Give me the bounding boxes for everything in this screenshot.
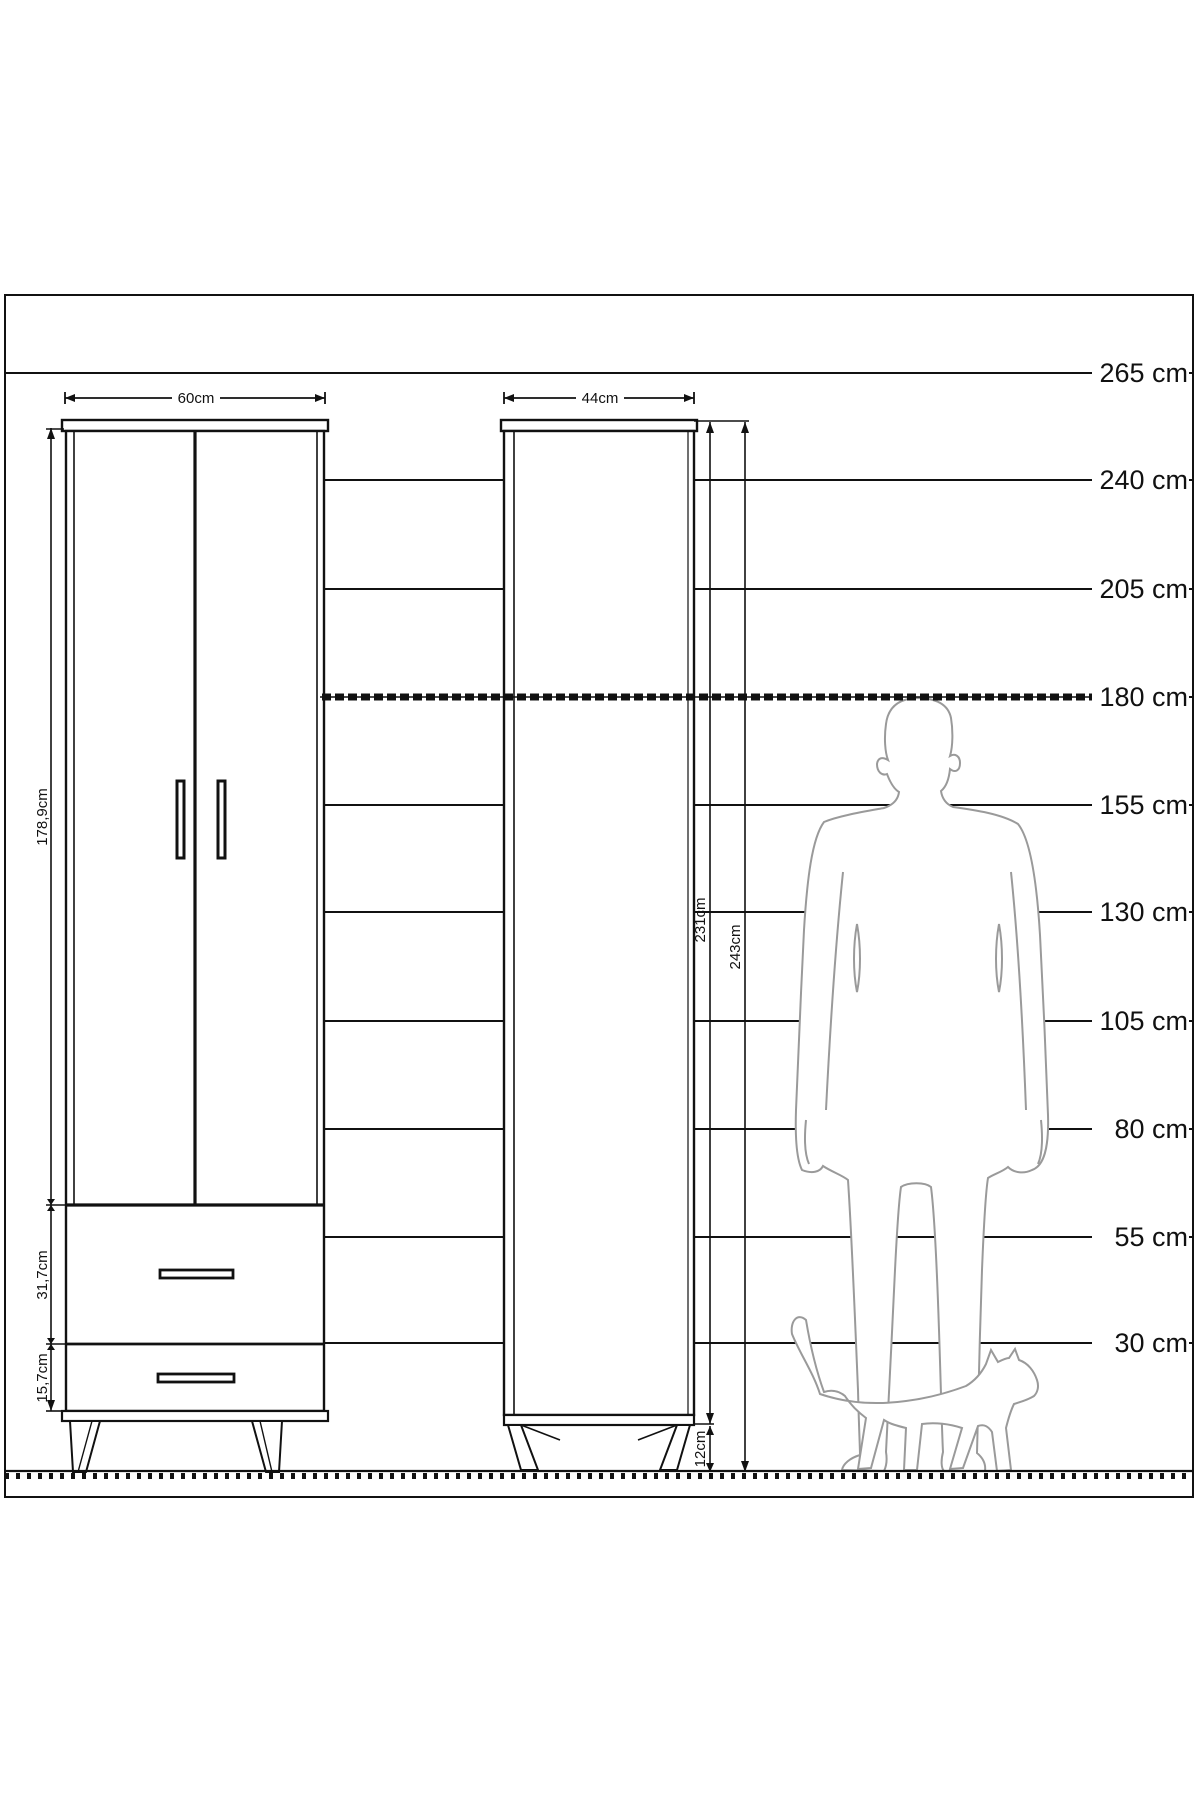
wardrobe-drawer2-label: 15,7cm — [34, 1353, 51, 1402]
cat-silhouette — [792, 1317, 1038, 1471]
wardrobe-base — [62, 1411, 328, 1421]
ruler-label-240: 240 cm — [1099, 465, 1188, 495]
cabinet-total-height-label: 243cm — [727, 924, 744, 969]
ruler-label-205: 205 cm — [1099, 574, 1188, 604]
wardrobe-right-door-handle — [218, 781, 225, 858]
wardrobe-height-label: 178,9cm — [34, 788, 51, 846]
cat-outline — [792, 1317, 1038, 1471]
wardrobe-top-panel — [62, 420, 328, 431]
floor-line — [5, 1471, 1193, 1476]
ruler-label-265: 265 cm — [1099, 358, 1188, 388]
ruler-label-30: 30 cm — [1114, 1328, 1188, 1358]
diagram-svg: 265 cm 240 cm 205 cm 180 cm 155 cm 130 c… — [0, 0, 1200, 1800]
ruler-label-155: 155 cm — [1099, 790, 1188, 820]
cabinet-drawing: 44cm 231cm 243cm 12cm — [501, 390, 749, 1472]
wardrobe-leg-right — [252, 1421, 282, 1472]
wardrobe-drawer-handle-2 — [158, 1374, 234, 1382]
ruler-label-130: 130 cm — [1099, 897, 1188, 927]
dimension-diagram: 265 cm 240 cm 205 cm 180 cm 155 cm 130 c… — [0, 0, 1200, 1800]
scale-ruler-labels: 265 cm 240 cm 205 cm 180 cm 155 cm 130 c… — [1099, 358, 1193, 1358]
cabinet-leg-left — [508, 1425, 538, 1470]
cabinet-leg-right — [660, 1425, 690, 1470]
ruler-label-55: 55 cm — [1114, 1222, 1188, 1252]
cabinet-body — [504, 431, 694, 1415]
cabinet-width-label: 44cm — [582, 390, 619, 407]
wardrobe-drawing: 60cm — [34, 390, 328, 1472]
cabinet-top-panel — [501, 420, 697, 431]
wardrobe-drawer1-label: 31,7cm — [34, 1250, 51, 1299]
wardrobe-left-door-handle — [177, 781, 184, 858]
ruler-label-105: 105 cm — [1099, 1006, 1188, 1036]
ruler-label-180: 180 cm — [1099, 682, 1188, 712]
cabinet-base — [504, 1415, 694, 1425]
ruler-label-80: 80 cm — [1114, 1114, 1188, 1144]
cabinet-leg-height-label: 12cm — [692, 1431, 709, 1468]
cabinet-body-height-label: 231cm — [692, 897, 709, 942]
wardrobe-width-label: 60cm — [178, 390, 215, 407]
wardrobe-drawer-handle-1 — [160, 1270, 233, 1278]
